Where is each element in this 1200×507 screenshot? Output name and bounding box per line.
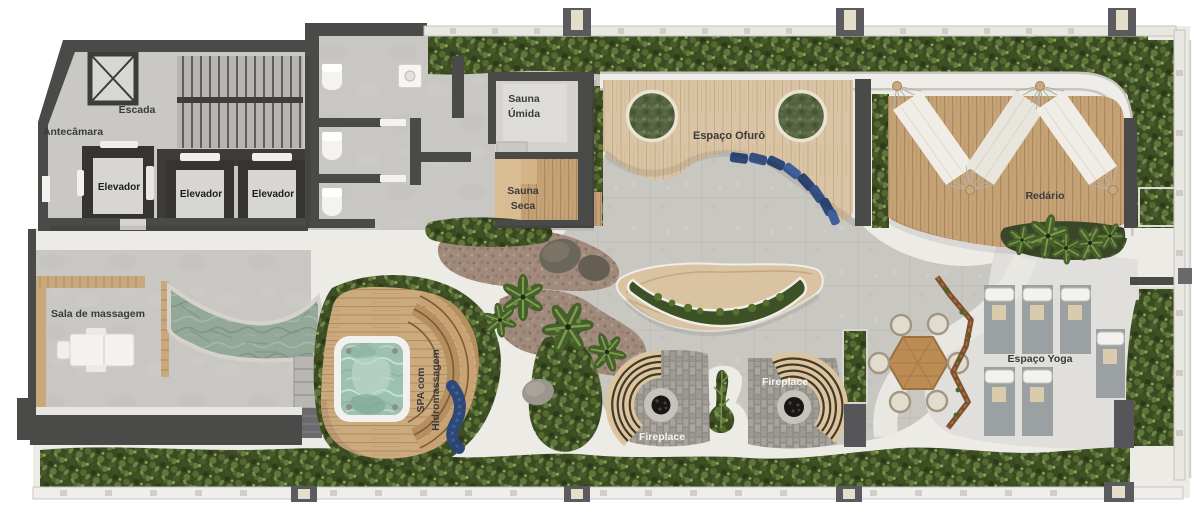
svg-text:Espaço Ofurô: Espaço Ofurô xyxy=(693,130,765,142)
svg-text:Seca: Seca xyxy=(511,200,536,212)
svg-text:Fireplace: Fireplace xyxy=(762,376,808,388)
svg-text:Sauna: Sauna xyxy=(507,185,539,197)
svg-text:Escada: Escada xyxy=(119,104,156,116)
svg-text:Sala de massagem: Sala de massagem xyxy=(51,308,145,320)
svg-text:Elevador: Elevador xyxy=(252,189,294,200)
svg-text:Úmida: Úmida xyxy=(508,107,540,120)
svg-text:Elevador: Elevador xyxy=(180,189,222,200)
svg-text:Redário: Redário xyxy=(1025,190,1064,202)
svg-text:Fireplace: Fireplace xyxy=(639,431,685,443)
svg-text:SPA com: SPA com xyxy=(415,368,427,413)
svg-text:Antecâmara: Antecâmara xyxy=(43,126,103,138)
svg-text:Elevador: Elevador xyxy=(98,182,140,193)
svg-text:Hidromassagem: Hidromassagem xyxy=(430,349,442,431)
svg-text:Sauna: Sauna xyxy=(508,93,540,105)
svg-text:Espaço Yoga: Espaço Yoga xyxy=(1008,353,1073,365)
